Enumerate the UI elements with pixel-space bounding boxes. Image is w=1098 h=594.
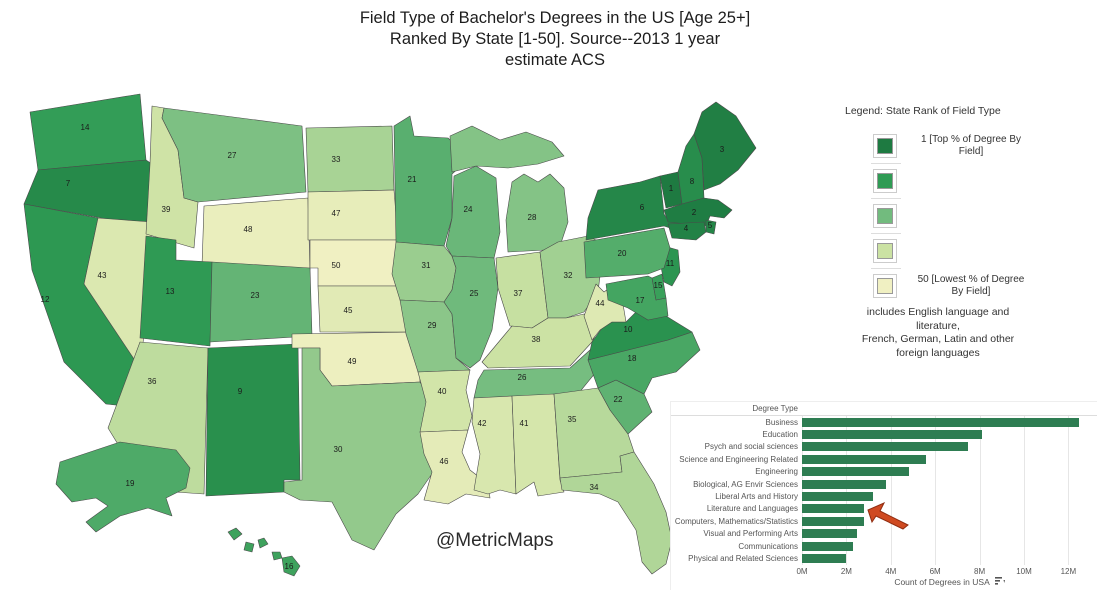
title-line-1: Field Type of Bachelor's Degrees in the … <box>300 8 810 29</box>
bar-label: Business <box>671 418 802 427</box>
chart-header: Degree Type <box>671 402 1097 416</box>
x-tick-label: 12M <box>1061 567 1077 576</box>
legend-title: Legend: State Rank of Field Type <box>845 105 1080 117</box>
note-line-2: literature, <box>808 320 1068 334</box>
legend-swatch-2[interactable] <box>873 169 897 193</box>
x-tick-label: 8M <box>974 567 985 576</box>
bar-plot-cell <box>802 418 1095 427</box>
bar-plot-cell <box>802 442 1095 451</box>
state-AK[interactable] <box>56 442 190 532</box>
bar[interactable] <box>802 467 909 476</box>
legend-top-label: 1 [Top % of Degree By Field] <box>911 134 1031 159</box>
bar-label: Science and Engineering Related <box>671 455 802 464</box>
bar-row: Biological, AG Envir Sciences <box>671 478 1097 490</box>
bar-label: Communications <box>671 542 802 551</box>
bar-plot-cell <box>802 480 1095 489</box>
state-WA[interactable] <box>30 94 146 170</box>
bar[interactable] <box>802 517 864 526</box>
bar[interactable] <box>802 418 1079 427</box>
bar[interactable] <box>802 529 857 538</box>
bar[interactable] <box>802 442 968 451</box>
page-title: Field Type of Bachelor's Degrees in the … <box>300 8 810 71</box>
x-tick-label: 2M <box>841 567 852 576</box>
bar-plot-cell <box>802 529 1095 538</box>
bar-row: Liberal Arts and History <box>671 490 1097 502</box>
bar-row: Physical and Related Sciences <box>671 552 1097 564</box>
note-line-3: French, German, Latin and other <box>808 333 1068 347</box>
state-HI[interactable] <box>228 528 300 576</box>
x-tick-label: 10M <box>1016 567 1032 576</box>
state-SD[interactable] <box>308 190 398 240</box>
watermark: @MetricMaps <box>436 530 553 552</box>
bar-rows: BusinessEducationPsych and social scienc… <box>671 416 1097 565</box>
bar-label: Engineering <box>671 467 802 476</box>
degree-type-bar-chart: Degree Type BusinessEducationPsych and s… <box>670 401 1097 590</box>
state-UT[interactable] <box>140 236 212 346</box>
bar[interactable] <box>802 480 886 489</box>
note-line-4: foreign languages <box>808 347 1068 361</box>
bar[interactable] <box>802 504 864 513</box>
bar-label: Biological, AG Envir Sciences <box>671 480 802 489</box>
bar-row: Business <box>671 416 1097 428</box>
legend-divider <box>871 198 901 199</box>
legend-divider <box>871 163 901 164</box>
chart-column-header: Degree Type <box>671 404 798 413</box>
chart-body: BusinessEducationPsych and social scienc… <box>671 416 1097 565</box>
x-axis-title-row: Count of Degrees in USA <box>802 576 1097 590</box>
bar-label: Psych and social sciences <box>671 442 802 451</box>
legend-swatch-rank1[interactable] <box>873 134 897 158</box>
x-tick-label: 0M <box>796 567 807 576</box>
dashboard: Field Type of Bachelor's Degrees in the … <box>0 0 1098 594</box>
x-axis-title: Count of Degrees in USA <box>894 577 989 587</box>
x-axis-ticks: 0M2M4M6M8M10M12M <box>802 565 1095 576</box>
bar[interactable] <box>802 430 982 439</box>
state-AR[interactable] <box>418 370 472 432</box>
state-WI[interactable] <box>446 166 500 258</box>
bar-row: Psych and social sciences <box>671 441 1097 453</box>
bar-plot-cell <box>802 504 1095 513</box>
legend-swatch-4[interactable] <box>873 239 897 263</box>
annotation-arrow-icon <box>865 502 909 530</box>
title-line-2: Ranked By State [1-50]. Source--2013 1 y… <box>300 29 810 50</box>
bar-plot-cell <box>802 542 1095 551</box>
state-MS[interactable] <box>472 396 516 494</box>
bar-row: Science and Engineering Related <box>671 453 1097 465</box>
bar-plot-cell <box>802 455 1095 464</box>
bar-label: Physical and Related Sciences <box>671 554 802 563</box>
legend-bottom-label: 50 [Lowest % of Degree By Field] <box>911 274 1031 299</box>
bar-label: Education <box>671 430 802 439</box>
x-tick-label: 4M <box>885 567 896 576</box>
state-IN[interactable] <box>496 252 548 328</box>
bar-label: Computers, Mathematics/Statistics <box>671 517 802 526</box>
state-NM[interactable] <box>206 344 300 496</box>
bar-label: Literature and Languages <box>671 504 802 513</box>
bar[interactable] <box>802 554 846 563</box>
legend-swatch-rank50[interactable] <box>873 274 897 298</box>
bar-row: Education <box>671 428 1097 440</box>
bar-plot-cell <box>802 554 1095 563</box>
state-CT[interactable] <box>668 222 706 240</box>
bar-plot-cell <box>802 517 1095 526</box>
bar-label: Visual and Performing Arts <box>671 529 802 538</box>
bar-row: Engineering <box>671 466 1097 478</box>
bar[interactable] <box>802 492 873 501</box>
bar-plot-cell <box>802 467 1095 476</box>
x-tick-label: 6M <box>930 567 941 576</box>
bar-plot-cell <box>802 492 1095 501</box>
bar[interactable] <box>802 455 926 464</box>
bar-plot-cell <box>802 430 1095 439</box>
legend-divider <box>871 268 901 269</box>
state-RI[interactable] <box>706 220 716 234</box>
state-IA[interactable] <box>392 242 456 302</box>
title-line-3: estimate ACS <box>300 50 810 71</box>
map-legend: Legend: State Rank of Field Type 1 [Top … <box>845 105 1080 299</box>
state-ND[interactable] <box>306 126 394 192</box>
sort-descending-icon[interactable] <box>995 577 1005 586</box>
legend-swatch-3[interactable] <box>873 204 897 228</box>
bar-row: Communications <box>671 540 1097 552</box>
state-CO[interactable] <box>210 262 312 342</box>
bar[interactable] <box>802 542 853 551</box>
bar-label: Liberal Arts and History <box>671 492 802 501</box>
legend-divider <box>871 233 901 234</box>
state-WY[interactable] <box>202 198 310 270</box>
note-line-1: includes English language and <box>808 306 1068 320</box>
state-MT[interactable] <box>162 108 306 202</box>
state-ME[interactable] <box>694 102 756 190</box>
field-note: includes English language and literature… <box>808 306 1068 361</box>
